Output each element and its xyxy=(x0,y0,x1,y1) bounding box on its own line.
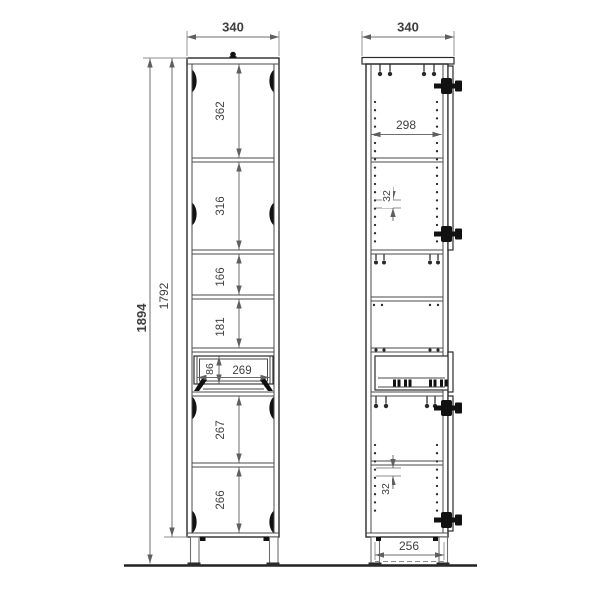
shelf-pin-holes xyxy=(374,101,376,243)
front-carcass-outline xyxy=(187,58,279,537)
hinge-icon xyxy=(269,511,273,533)
front-overall-height-label: 1894 xyxy=(134,303,149,333)
top-knob-icon xyxy=(230,52,237,58)
hinge-icon xyxy=(193,511,197,533)
hinge-icon xyxy=(193,203,197,225)
front-dimensions: 340 1894 1792 362 316 166 181 267 266 86 xyxy=(134,20,279,564)
drawer-height-label: 86 xyxy=(204,363,216,375)
side-width-label: 340 xyxy=(397,20,419,35)
hinge-icon xyxy=(193,70,197,92)
shelf-pin-holes xyxy=(436,101,438,243)
section-height-label: 181 xyxy=(215,317,227,336)
hinge-icon xyxy=(269,203,273,225)
front-shelf-lines xyxy=(192,158,274,467)
drawer-front-edge xyxy=(448,352,453,392)
cabinet-dimension-drawing: 340 1894 1792 362 316 166 181 267 266 86 xyxy=(0,0,600,600)
side-drawer-box xyxy=(375,356,448,390)
front-hinge-icons xyxy=(193,70,274,533)
side-view: 340 298 32 32 256 xyxy=(362,20,462,567)
shelf-pin-holes xyxy=(436,444,438,512)
cup-hinge-icon xyxy=(434,400,462,416)
front-legs xyxy=(188,537,280,566)
section-height-label: 267 xyxy=(215,420,227,439)
side-dimensions: 340 298 32 32 256 xyxy=(362,20,454,562)
side-shelf-lines xyxy=(371,158,443,465)
section-height-label: 362 xyxy=(215,101,227,120)
front-carcass-height-label: 1792 xyxy=(157,282,171,309)
lower-door-edge xyxy=(448,396,453,531)
section-height-label: 266 xyxy=(215,490,227,509)
side-door-edges xyxy=(448,66,453,531)
hinge-icon xyxy=(269,397,273,419)
hinge-icon xyxy=(269,70,273,92)
cup-hinge-icon xyxy=(434,512,462,528)
hole-pitch-lower-label: 32 xyxy=(380,483,392,495)
section-height-label: 166 xyxy=(215,267,227,286)
front-view: 340 1894 1792 362 316 166 181 267 266 86 xyxy=(134,20,280,567)
hinge-icon xyxy=(193,397,197,419)
shelf-pin-holes xyxy=(374,444,376,512)
cup-hinge-icon xyxy=(434,226,462,242)
cup-hinge-icon xyxy=(434,78,462,94)
front-width-label: 340 xyxy=(222,20,244,35)
section-height-label: 316 xyxy=(215,196,227,215)
hole-pitch-upper-label: 32 xyxy=(381,190,393,202)
base-span-label: 256 xyxy=(399,539,419,553)
drawing-canvas: 340 1894 1792 362 316 166 181 267 266 86 xyxy=(0,0,600,600)
drawer-width-label: 269 xyxy=(232,365,251,377)
side-inner-width-label: 298 xyxy=(396,118,416,132)
